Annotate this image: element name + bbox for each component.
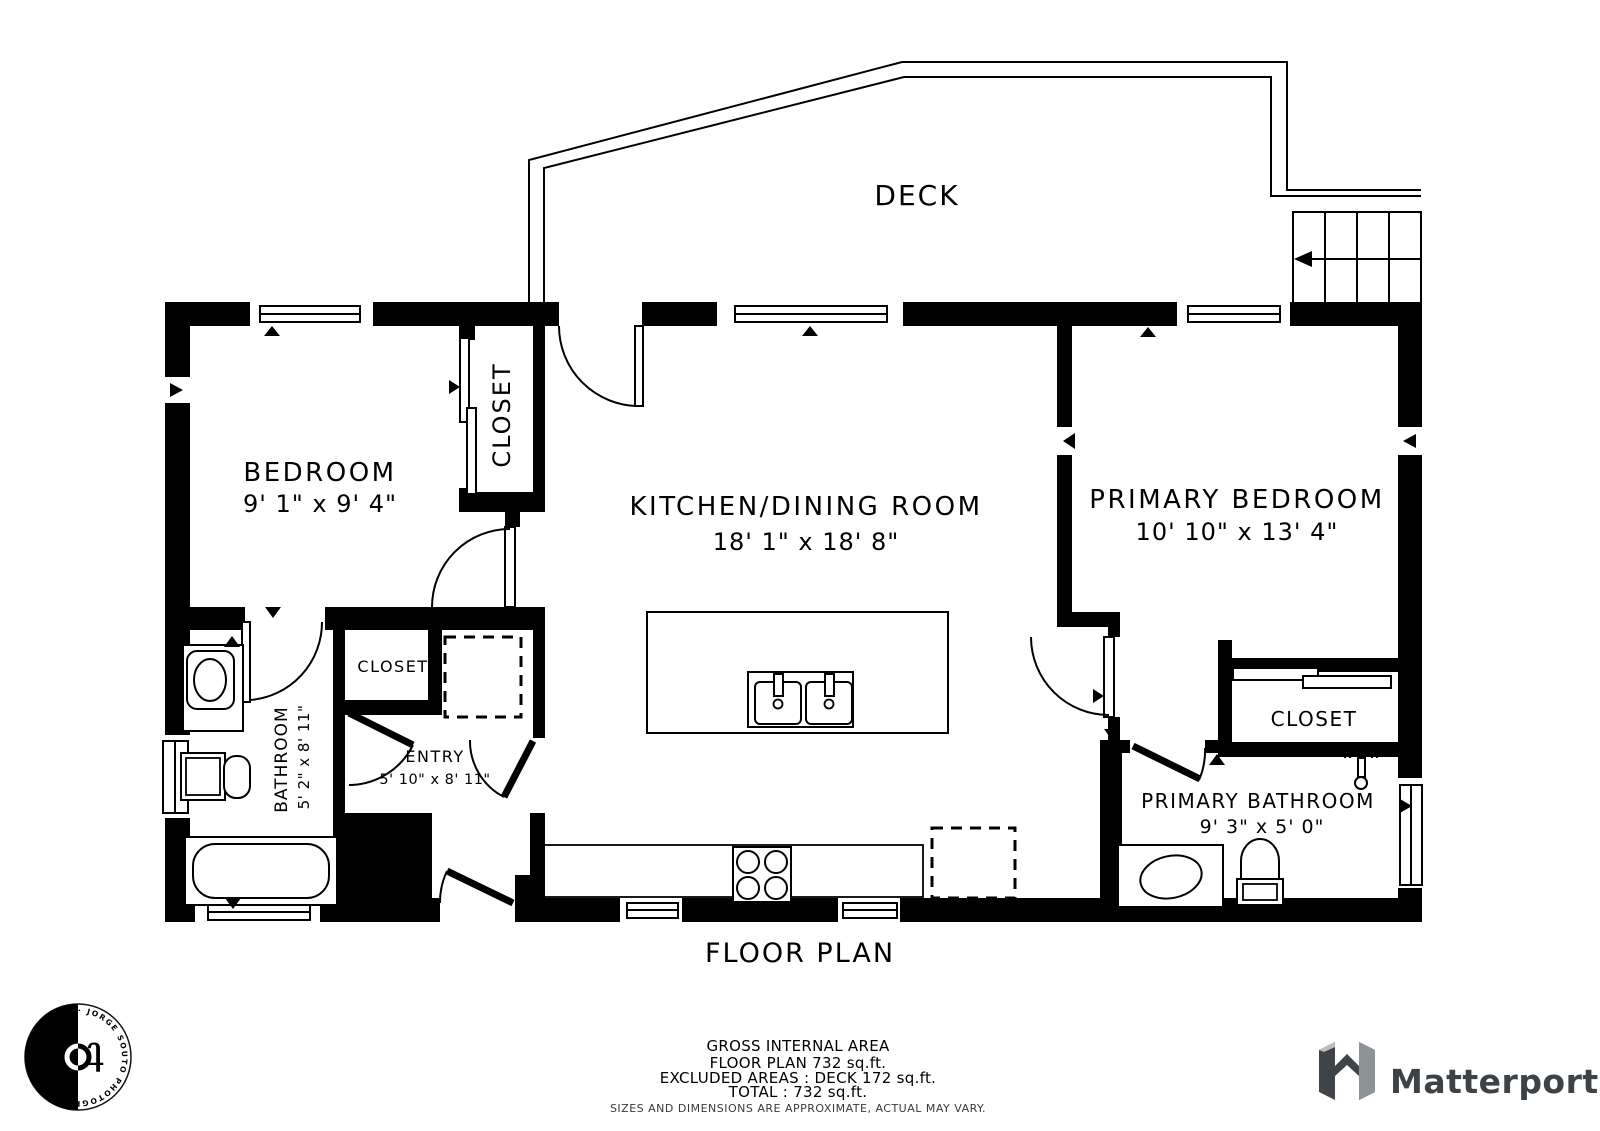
deck: DECK	[529, 62, 1421, 310]
primary-bedroom-label: PRIMARY BEDROOM	[1089, 485, 1384, 515]
wall-bottom	[165, 898, 1422, 922]
kitchen-island	[647, 612, 948, 733]
primary-bedroom-dims: 10' 10" x 13' 4"	[1136, 518, 1339, 546]
stove	[733, 847, 791, 902]
primary-closet-label: CLOSET	[1271, 707, 1358, 731]
bathtub	[185, 837, 337, 905]
wall-entry-closet-bottom	[345, 700, 442, 715]
wall-entry-block	[333, 813, 432, 898]
bedroom-closet-label: CLOSET	[488, 362, 516, 467]
room-labels: BEDROOM 9' 1" x 9' 4" CLOSET KITCHEN/DIN…	[243, 362, 1385, 838]
wall-closet-right	[533, 326, 545, 512]
entry-appliance-dashed	[445, 637, 521, 717]
entry-kitchen-door	[470, 740, 533, 797]
entry-closet-label: CLOSET	[357, 657, 428, 676]
page-title: FLOOR PLAN	[705, 938, 895, 969]
bathroom-label: BATHROOM 5' 2" x 8' 11"	[272, 701, 313, 812]
kitchen-dims: 18' 1" x 18' 8"	[713, 528, 900, 556]
door-marker	[1093, 689, 1104, 703]
stairs-direction-arrow	[1294, 251, 1312, 267]
floor-plan-drawing: DECK	[0, 0, 1600, 1131]
deck-stairs	[1293, 212, 1421, 310]
window-marker	[1140, 327, 1156, 337]
primary-bathroom-window	[1400, 785, 1422, 885]
wall-primarycloset-bottom	[1218, 742, 1422, 757]
floor-plan-page: DECK	[0, 0, 1600, 1131]
window-marker	[802, 326, 818, 336]
closet-marker	[449, 380, 460, 394]
deck-label: DECK	[874, 179, 959, 212]
wall-bedroom-door-nub	[505, 512, 520, 527]
door-marker	[224, 636, 240, 647]
primary-bathroom-toilet	[1237, 839, 1283, 905]
tub-window	[208, 904, 310, 920]
window-marker	[264, 326, 280, 336]
kitchen-bottom-window-1	[627, 903, 678, 918]
bathroom-door	[242, 622, 322, 702]
footer-total: TOTAL : 732 sq.ft.	[728, 1083, 868, 1101]
wall-primary-door-nub-top	[1108, 627, 1120, 637]
primary-bedroom-door	[1031, 637, 1114, 717]
wall-entry-kitchen-upper	[533, 630, 545, 738]
footer-area-title: GROSS INTERNAL AREA	[706, 1037, 890, 1055]
bedroom-window	[260, 306, 360, 322]
bedroom-label: BEDROOM	[243, 458, 396, 488]
footer-disclaimer: SIZES AND DIMENSIONS ARE APPROXIMATE, AC…	[610, 1102, 986, 1115]
svg-text:· JORGE SOUTO PHOTOGRAPHY · JO: · JORGE SOUTO PHOTOGRAPHY · JORGE SOUTO …	[0, 0, 129, 1108]
bathroom-toilet	[181, 753, 250, 800]
primary-bathroom-label: PRIMARY BATHROOM	[1141, 789, 1375, 813]
title-block: FLOOR PLAN GROSS INTERNAL AREA FLOOR PLA…	[610, 938, 986, 1115]
wall-kitchen-primary-upper	[1057, 326, 1072, 612]
bathroom-vanity-sink	[183, 645, 243, 731]
entry-label: ENTRY	[405, 747, 464, 766]
wall-kitchen-primary-jog	[1057, 612, 1120, 627]
photographer-logo: · JORGE SOUTO PHOTOGRAPHY · JORGE SOUTO …	[0, 0, 131, 1110]
deck-door	[559, 326, 643, 406]
matterport-logo: Matterport	[1319, 1042, 1599, 1101]
primary-bathroom-dims: 9' 3" x 5' 0"	[1200, 816, 1325, 838]
bedroom-door	[432, 527, 515, 607]
bedroom-dims: 9' 1" x 9' 4"	[243, 490, 397, 518]
wall-primarycloset-left	[1218, 640, 1232, 755]
wall-bedroom-bottom	[165, 607, 545, 630]
wall-bathroom-entry	[333, 630, 345, 815]
primary-bedroom-window	[1188, 306, 1280, 322]
matterport-wordmark: Matterport	[1390, 1062, 1599, 1101]
kitchen-bottom-window-2	[843, 903, 897, 918]
kitchen-window	[735, 306, 887, 322]
deck-railing-outer	[529, 62, 1421, 302]
kitchen-label: KITCHEN/DINING ROOM	[629, 492, 982, 522]
bedroom-closet-sliding-doors	[460, 338, 476, 494]
kitchen-appliance-dashed	[932, 828, 1015, 898]
entry-dims: 5' 10" x 8' 11"	[379, 772, 490, 788]
primary-bathroom-vanity-sink	[1118, 845, 1223, 907]
wall-frontdoor-nub	[515, 875, 545, 922]
svg-text:· JORGE SOUTO PHOTOGRAPHY · JO: · JORGE SOUTO PHOTOGRAPHY · JORGE SOUTO …	[0, 0, 129, 1108]
matterport-icon	[1319, 1042, 1375, 1100]
